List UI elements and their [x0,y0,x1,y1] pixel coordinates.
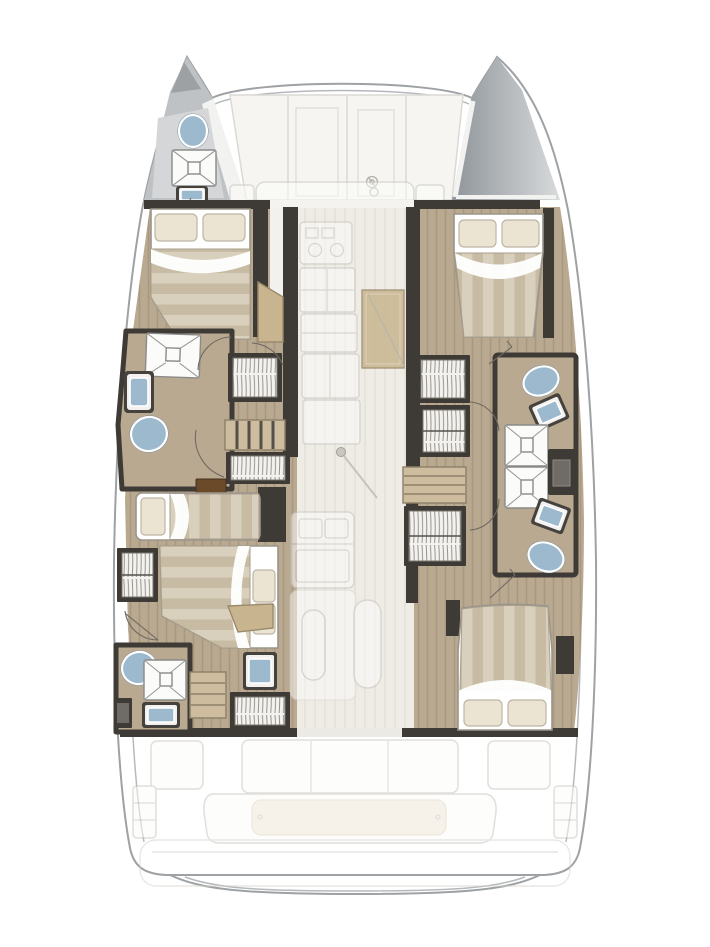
vanity-sink [243,652,277,690]
pillow [253,570,275,602]
pillow [203,214,245,241]
shower [145,333,200,378]
cockpit-side-seat [151,741,203,789]
port-mid-cabin [136,493,260,540]
galley-stove [300,222,352,264]
cockpit-door-wall [297,728,402,737]
catamaran-floor-plan [0,0,710,947]
shower [505,425,548,466]
wardrobe [228,353,282,402]
cockpit-sofa [242,740,458,793]
toilet [178,114,208,148]
entry-door-floor [362,290,404,368]
pillow [464,700,502,726]
stairs [403,467,466,503]
stairs [190,672,226,718]
starboard-forward-bulkhead [414,200,540,209]
salon-front-wall [258,200,414,208]
cabinet [548,449,575,495]
starboard-aft-hull-wall [556,636,574,674]
wardrobe [404,506,466,566]
duvet [460,605,551,690]
bench-cushion [252,800,446,835]
step [196,479,226,494]
bench-cushion [302,610,325,680]
port-mid-bathroom [118,331,232,489]
pillow [141,498,165,535]
stairs [225,420,285,450]
port-forward-bulkhead [144,200,270,209]
wardrobe [117,548,158,602]
wardrobe [230,692,290,730]
cockpit-side-seat [488,741,550,789]
starboard-bathrooms [495,355,576,578]
pillow [155,214,197,241]
galley-counters [300,268,360,444]
bench-cushion [354,600,381,688]
floor-plan-drawing [0,0,710,947]
shower [144,660,186,700]
cabin-side-wall [543,208,554,338]
starboard-aft-cabin [458,604,552,730]
sink [124,371,154,413]
wardrobe [418,405,470,457]
locker [114,698,132,728]
wardrobe [226,452,290,484]
sink-unit [291,512,354,588]
port-aft-bathroom [114,645,190,732]
mid-cabin-cabinet [258,487,286,542]
shower [172,150,216,186]
sink [142,702,180,728]
entry-area [362,290,404,368]
starboard-aft-cabin-wall [446,600,460,636]
salon-starboard-wall [406,207,420,467]
pillow [459,220,496,247]
pillow [508,700,546,726]
wardrobe [416,355,470,403]
pillow [502,220,539,247]
